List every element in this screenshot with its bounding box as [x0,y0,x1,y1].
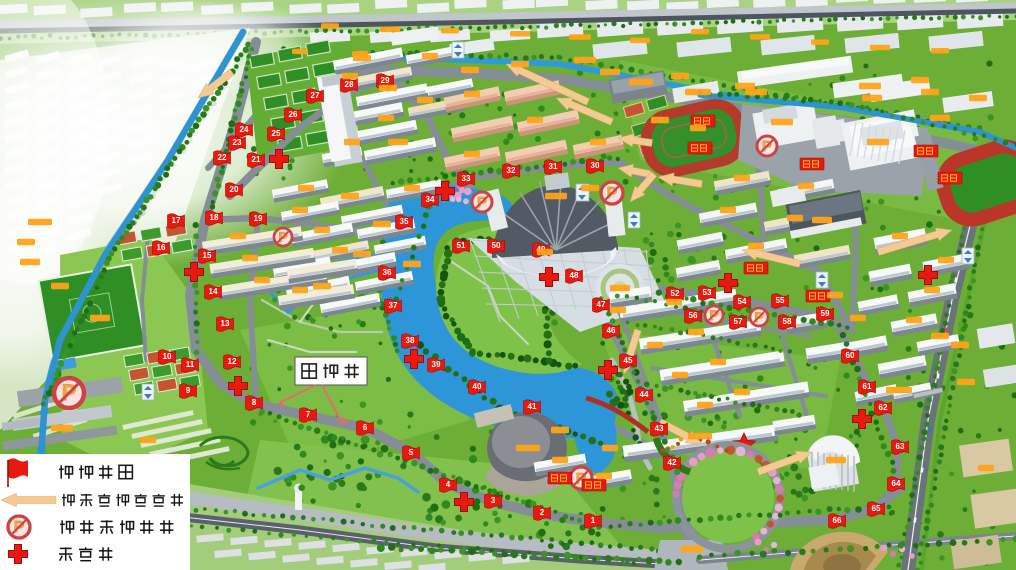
svg-text:28: 28 [345,80,354,89]
svg-text:64: 64 [892,479,901,488]
svg-text:59: 59 [821,309,830,318]
svg-text:8: 8 [252,398,257,407]
svg-text:58: 58 [783,317,792,326]
svg-text:17: 17 [172,216,181,225]
svg-text:47: 47 [597,300,606,309]
svg-text:39: 39 [432,360,441,369]
svg-text:46: 46 [607,326,616,335]
svg-text:62: 62 [879,403,888,412]
svg-text:44: 44 [640,390,649,399]
svg-text:31: 31 [549,162,558,171]
svg-text:63: 63 [896,442,905,451]
svg-text:35: 35 [400,217,409,226]
svg-text:52: 52 [671,289,680,298]
svg-text:25: 25 [272,129,281,138]
svg-text:20: 20 [230,185,239,194]
svg-text:45: 45 [624,356,633,365]
svg-text:32: 32 [507,166,516,175]
svg-text:1: 1 [591,516,596,525]
svg-text:2: 2 [540,508,545,517]
svg-text:30: 30 [591,161,600,170]
svg-text:61: 61 [863,382,872,391]
svg-text:29: 29 [381,76,390,85]
svg-text:27: 27 [311,91,320,100]
svg-text:48: 48 [570,271,579,280]
svg-text:13: 13 [221,319,230,328]
svg-text:15: 15 [203,251,212,260]
svg-text:12: 12 [228,357,237,366]
svg-text:40: 40 [473,382,482,391]
svg-text:6: 6 [363,423,368,432]
svg-text:54: 54 [738,297,747,306]
svg-text:5: 5 [409,448,414,457]
svg-text:41: 41 [528,402,537,411]
svg-text:23: 23 [233,138,242,147]
svg-text:10: 10 [163,352,172,361]
svg-text:60: 60 [846,351,855,360]
svg-text:9: 9 [186,386,191,395]
svg-text:36: 36 [383,268,392,277]
svg-text:14: 14 [209,287,218,296]
svg-text:26: 26 [289,110,298,119]
svg-text:4: 4 [446,480,451,489]
svg-text:19: 19 [254,214,263,223]
svg-text:18: 18 [210,213,219,222]
svg-text:56: 56 [689,311,698,320]
svg-text:11: 11 [186,360,195,369]
svg-text:7: 7 [306,410,311,419]
svg-text:16: 16 [157,243,166,252]
svg-text:65: 65 [872,504,881,513]
svg-text:34: 34 [426,195,435,204]
svg-text:24: 24 [240,125,249,134]
svg-text:42: 42 [668,458,677,467]
svg-text:21: 21 [252,155,261,164]
svg-text:55: 55 [776,296,785,305]
svg-text:43: 43 [655,424,664,433]
svg-text:3: 3 [491,496,496,505]
svg-text:57: 57 [734,317,743,326]
svg-text:37: 37 [389,301,398,310]
svg-text:51: 51 [457,241,466,250]
svg-text:38: 38 [406,336,415,345]
svg-text:66: 66 [833,516,842,525]
svg-text:22: 22 [218,153,227,162]
svg-text:33: 33 [462,174,471,183]
svg-text:50: 50 [492,241,501,250]
svg-text:53: 53 [703,288,712,297]
